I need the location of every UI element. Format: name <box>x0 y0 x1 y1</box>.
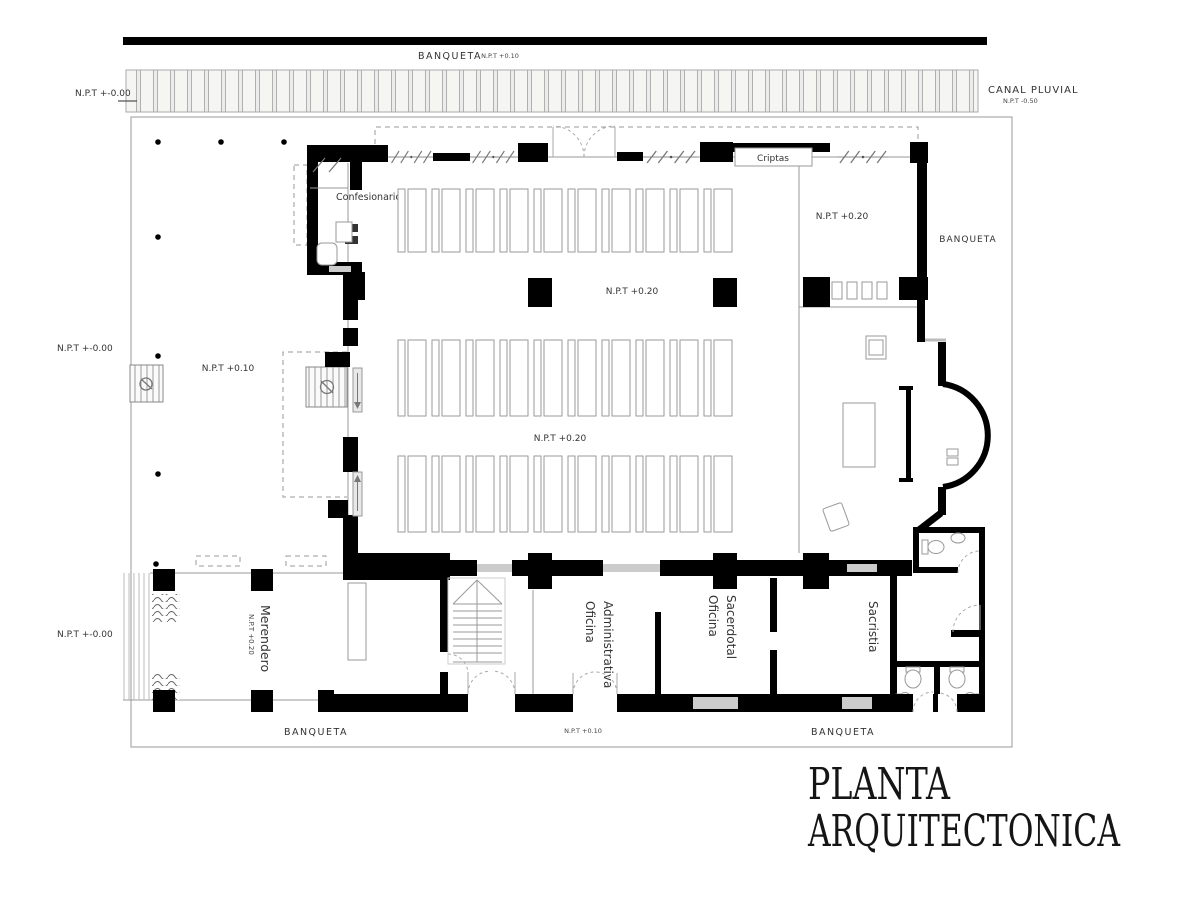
porch-column <box>318 690 334 712</box>
pew-bench <box>680 340 698 416</box>
column-dot <box>155 471 161 477</box>
pew-bench <box>714 340 732 416</box>
pew-bench <box>442 189 460 252</box>
pew-bench <box>568 456 575 532</box>
altar-rail <box>906 388 911 480</box>
canal-pluvial-label: CANAL PLUVIAL <box>988 85 1079 96</box>
oficina-sac-label-1: Oficina <box>706 595 720 637</box>
celebrant-chair <box>822 502 849 531</box>
pier <box>713 278 737 307</box>
street-curb-bar <box>123 37 987 45</box>
pew-bench <box>544 340 562 416</box>
porch-planter <box>152 594 180 622</box>
pew-bench <box>636 340 643 416</box>
pew-bench <box>466 340 473 416</box>
window-icon <box>389 151 433 163</box>
pew-bench <box>670 456 677 532</box>
pier <box>803 277 830 307</box>
column-dot <box>281 139 287 145</box>
canal-pluvial-npt: N.P.T -0.50 <box>1003 97 1038 105</box>
porch-column <box>153 569 175 591</box>
nave-npt: N.P.T +0.20 <box>534 434 587 444</box>
merendero-table <box>348 583 366 660</box>
pew-bench <box>680 189 698 252</box>
pew-bench <box>476 340 494 416</box>
main-entrance-door <box>553 126 615 157</box>
pew-bench <box>568 189 575 252</box>
confessionary-room <box>307 145 365 300</box>
pew-bench <box>670 189 677 252</box>
pew-bench <box>636 189 643 252</box>
column-dot <box>153 561 159 567</box>
pew-bench <box>646 189 664 252</box>
double-door <box>468 671 515 694</box>
bottom-banqueta-right: BANQUETA <box>811 727 875 738</box>
window-icon <box>837 151 888 163</box>
npt-zero-top: N.P.T +-0.00 <box>75 89 131 99</box>
pew-bench <box>432 340 439 416</box>
column-dot <box>155 234 161 240</box>
bathrooms <box>895 527 985 712</box>
porch-column <box>251 690 273 712</box>
criptas-label: Criptas <box>757 154 789 164</box>
pew-bench <box>612 340 630 416</box>
stairwell <box>440 575 505 694</box>
offices: Oficina Administrativa Oficina Sacerdota… <box>440 573 897 694</box>
pew-bench <box>476 189 494 252</box>
pew-bench <box>510 456 528 532</box>
pew-bench <box>646 340 664 416</box>
pew-bench <box>408 340 426 416</box>
pew-bench <box>704 189 711 252</box>
porch-steps <box>124 573 149 700</box>
floor-plan-sheet: BANQUETA N.P.T +0.10 N.P.T +-0.00 CANAL … <box>0 0 1200 900</box>
oficina-adm-label-1: Oficina <box>583 601 597 643</box>
pew-bench <box>476 456 494 532</box>
apse-window <box>947 449 958 456</box>
pew-bench <box>544 189 562 252</box>
pew-bench <box>704 456 711 532</box>
top-banqueta-label: BANQUETA <box>418 51 482 62</box>
ramp-down <box>353 368 362 412</box>
pew-bench <box>442 340 460 416</box>
confessionary-label: Confesionario <box>336 192 401 203</box>
dashed-table <box>196 556 240 566</box>
column-dot <box>155 353 161 359</box>
pew-bench <box>646 456 664 532</box>
sacristia-label: Sacristia <box>866 601 880 652</box>
toilet-icon <box>922 540 944 554</box>
title-line-1: PLANTA <box>808 759 951 810</box>
dashed-table <box>286 556 326 566</box>
pew-bench <box>544 456 562 532</box>
sink-icon <box>949 667 965 688</box>
pew-bench <box>500 456 507 532</box>
confessionary-chair <box>336 222 352 242</box>
sink-icon <box>905 667 921 688</box>
pew-bench <box>398 456 405 532</box>
pew-bench <box>602 189 609 252</box>
pew-bench <box>398 340 405 416</box>
confessionary-desk <box>317 243 337 265</box>
atrium-npt: N.P.T +0.10 <box>202 364 255 374</box>
office-divider-wall <box>770 650 777 694</box>
oficina-sac-label-2: Sacerdotal <box>724 595 738 659</box>
planter <box>130 365 163 402</box>
atrium: N.P.T +0.10 N.P.T +-0.00 N.P.T +-0.00 <box>57 139 347 640</box>
pew-bench <box>442 456 460 532</box>
altar-table <box>843 403 875 467</box>
pew-bench <box>704 340 711 416</box>
pew-bench <box>578 340 596 416</box>
pew-bench <box>612 456 630 532</box>
sink-icon <box>951 533 965 543</box>
office-divider-wall <box>770 578 777 632</box>
pew-bench <box>568 340 575 416</box>
pew-bench <box>408 189 426 252</box>
bottom-banqueta-left: BANQUETA <box>284 727 348 738</box>
planter <box>306 367 347 407</box>
pew-bench <box>602 340 609 416</box>
chancel-chair <box>832 282 842 299</box>
merendero-npt: N.P.T +0.20 <box>247 614 255 655</box>
top-banqueta-npt: N.P.T +0.10 <box>481 52 519 60</box>
pew-bench <box>500 340 507 416</box>
pew-bench <box>612 189 630 252</box>
chancel-chair <box>877 282 887 299</box>
pew-bench <box>636 456 643 532</box>
pew-bench <box>466 456 473 532</box>
pew-bench <box>466 189 473 252</box>
top-sidewalk: BANQUETA N.P.T +0.10 N.P.T +-0.00 CANAL … <box>75 37 1079 112</box>
sacristy-wall <box>890 573 897 694</box>
nave-east-wall-apse <box>899 163 988 530</box>
bottom-npt: N.P.T +0.10 <box>564 727 602 735</box>
pew-bench <box>534 189 541 252</box>
pier <box>528 278 552 307</box>
oficina-adm-label-2: Administrativa <box>601 601 615 688</box>
pew-bench <box>432 189 439 252</box>
right-banqueta: BANQUETA <box>939 235 996 245</box>
npt-zero-bottomleft: N.P.T +-0.00 <box>57 630 113 640</box>
column-dot <box>155 139 161 145</box>
pew-bench <box>602 456 609 532</box>
pew-bench <box>398 189 405 252</box>
apse-window <box>947 458 958 465</box>
pew-bench <box>510 340 528 416</box>
pew-bench <box>714 189 732 252</box>
chancel-chair <box>862 282 872 299</box>
floor-plan-canvas: BANQUETA N.P.T +0.10 N.P.T +-0.00 CANAL … <box>0 0 1200 900</box>
office-divider-wall <box>655 612 661 694</box>
title-line-2: ARQUITECTONICA <box>807 806 1121 857</box>
pew-bench <box>432 456 439 532</box>
nave-west-wall <box>325 300 362 553</box>
pew-bench <box>534 456 541 532</box>
window-icon <box>644 151 697 163</box>
pews <box>398 189 732 532</box>
pew-bench <box>534 340 541 416</box>
nave-npt: N.P.T +0.20 <box>606 287 659 297</box>
pew-bench <box>714 456 732 532</box>
porch-column <box>153 690 175 712</box>
merendero-porch: Merendero N.P.T +0.20 <box>123 569 366 712</box>
window-icon <box>470 151 516 163</box>
pew-bench <box>578 189 596 252</box>
pew-bench <box>680 456 698 532</box>
chancel <box>822 282 913 532</box>
sheet-title: PLANTA ARQUITECTONICA <box>807 759 1121 857</box>
npt-zero-left: N.P.T +-0.00 <box>57 344 113 354</box>
apse-curved-wall <box>943 384 988 487</box>
nave-south-wall <box>343 553 912 589</box>
merendero-label: Merendero <box>258 605 273 672</box>
nave-north-wall <box>307 142 928 163</box>
nave: Criptas Confesionario <box>307 126 988 565</box>
column-dot <box>218 139 224 145</box>
pew-bench <box>578 456 596 532</box>
chancel-chair <box>847 282 857 299</box>
ramp-up <box>353 472 362 516</box>
pew-bench <box>408 456 426 532</box>
sidewalk-pavers <box>126 70 978 112</box>
pew-bench <box>510 189 528 252</box>
porch-column <box>251 569 273 591</box>
pew-bench <box>670 340 677 416</box>
pew-bench <box>500 189 507 252</box>
nave-npt: N.P.T +0.20 <box>816 212 869 222</box>
